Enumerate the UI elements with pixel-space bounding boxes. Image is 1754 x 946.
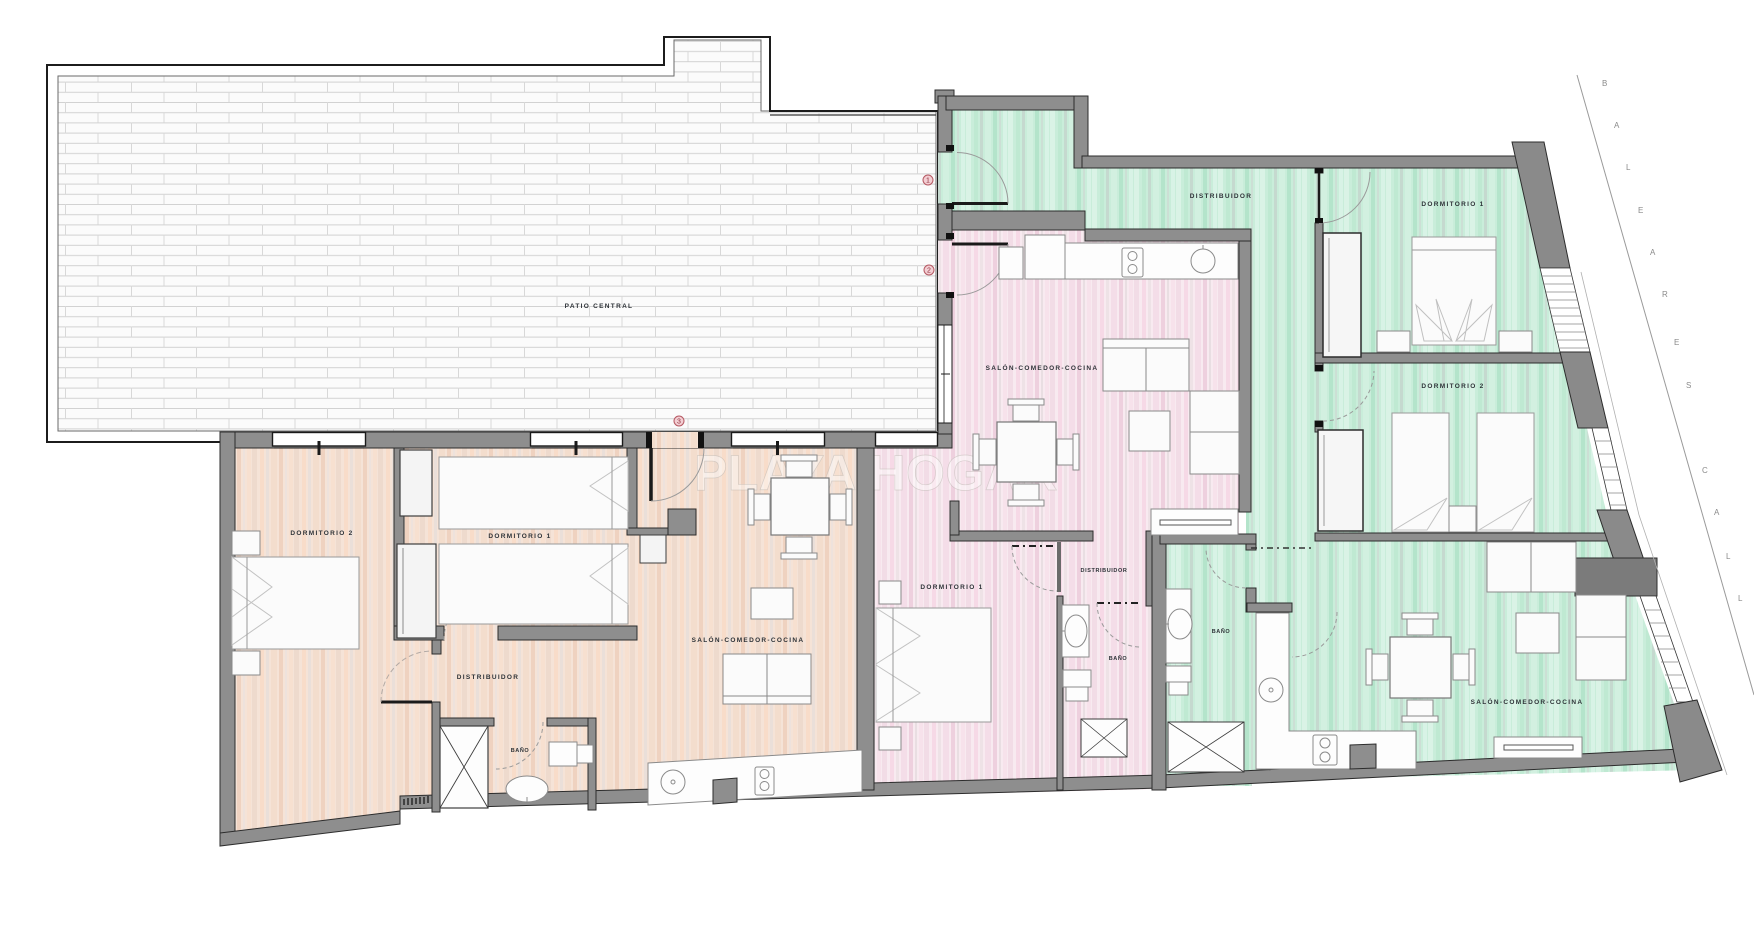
svg-text:BAÑO: BAÑO xyxy=(1212,628,1231,635)
svg-text:SALÓN-COMEDOR-COCINA: SALÓN-COMEDOR-COCINA xyxy=(692,635,805,644)
svg-text:E: E xyxy=(1638,206,1643,215)
svg-text:L: L xyxy=(1738,594,1743,603)
svg-text:DORMITORIO 2: DORMITORIO 2 xyxy=(290,530,353,537)
svg-text:R: R xyxy=(1662,290,1668,299)
svg-text:DORMITORIO 1: DORMITORIO 1 xyxy=(1421,201,1484,208)
svg-text:DISTRIBUIDOR: DISTRIBUIDOR xyxy=(1190,193,1253,200)
svg-text:3: 3 xyxy=(677,419,681,426)
svg-text:L: L xyxy=(1726,552,1731,561)
svg-text:B: B xyxy=(1602,79,1607,88)
svg-text:DISTRIBUIDOR: DISTRIBUIDOR xyxy=(457,674,520,681)
svg-text:A: A xyxy=(1650,248,1656,257)
svg-text:SALÓN-COMEDOR-COCINA: SALÓN-COMEDOR-COCINA xyxy=(1471,697,1584,706)
svg-text:E: E xyxy=(1674,338,1679,347)
svg-text:BAÑO: BAÑO xyxy=(1109,655,1128,662)
svg-text:2: 2 xyxy=(927,268,931,275)
svg-text:DORMITORIO 1: DORMITORIO 1 xyxy=(920,584,983,591)
svg-text:1: 1 xyxy=(926,178,930,185)
svg-text:C: C xyxy=(1702,466,1708,475)
svg-text:A: A xyxy=(1714,508,1720,517)
svg-text:S: S xyxy=(1686,381,1691,390)
svg-text:BAÑO: BAÑO xyxy=(511,747,530,754)
svg-text:L: L xyxy=(1626,163,1631,172)
svg-text:SALÓN-COMEDOR-COCINA: SALÓN-COMEDOR-COCINA xyxy=(986,363,1099,372)
svg-text:PATIO CENTRAL: PATIO CENTRAL xyxy=(565,303,634,310)
svg-text:A: A xyxy=(1614,121,1620,130)
svg-text:DISTRIBUIDOR: DISTRIBUIDOR xyxy=(1081,568,1128,574)
svg-text:DORMITORIO 1: DORMITORIO 1 xyxy=(488,533,551,540)
svg-text:DORMITORIO 2: DORMITORIO 2 xyxy=(1421,383,1484,390)
